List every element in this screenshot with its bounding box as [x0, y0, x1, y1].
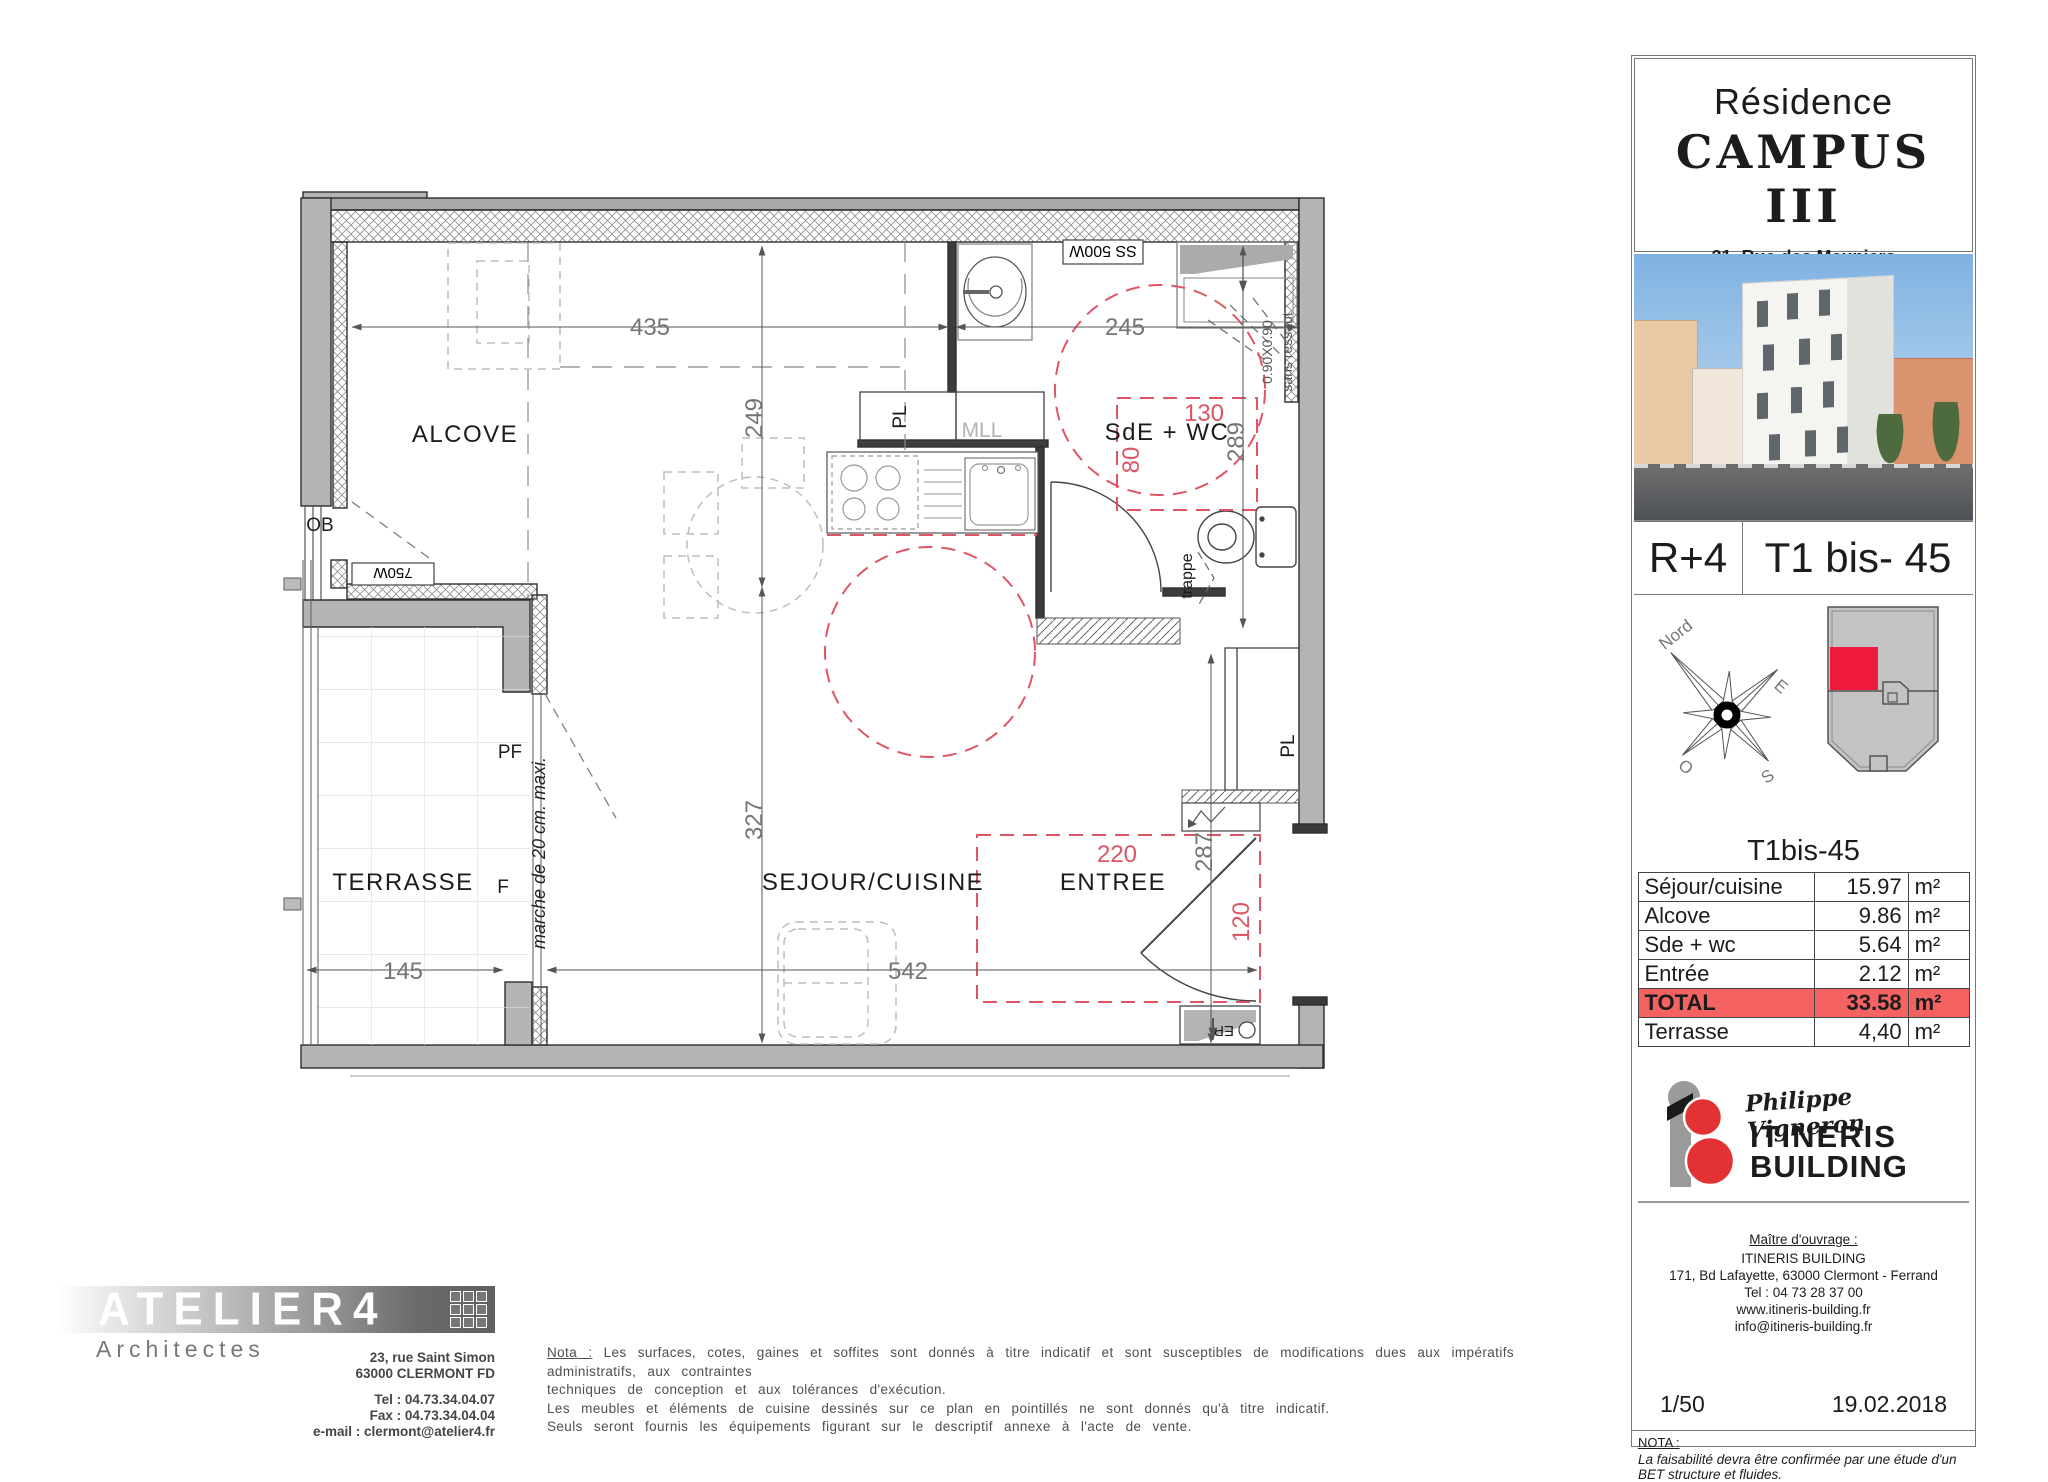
architect-address1: 23, rue Saint Simon	[240, 1350, 495, 1366]
closet-hatch	[1182, 790, 1299, 803]
dim-145: 145	[383, 958, 423, 985]
dim-287: 287	[1191, 832, 1218, 872]
table-row: Alcove 9.86 m²	[1638, 902, 1969, 931]
vent-box	[1182, 803, 1260, 831]
builder-name-line2: BUILDING	[1750, 1149, 1908, 1185]
label-pf: PF	[498, 742, 522, 763]
label-step-note: marche de 20 cm. maxi.	[529, 757, 549, 949]
owner-website: www.itineris-building.fr	[1632, 1301, 1975, 1318]
footnote-label: Nota :	[547, 1345, 592, 1360]
table-row: Sde + wc 5.64 m²	[1638, 931, 1969, 960]
room-label-sejour: SEJOUR/CUISINE	[762, 869, 984, 896]
site-plan	[1820, 601, 1960, 801]
drawing-date: 19.02.2018	[1832, 1391, 1947, 1418]
label-750w: 750W	[373, 564, 413, 581]
footnote-line4: Seuls seront fournis les équipements fig…	[547, 1418, 1567, 1437]
label-trappe: trappe	[1179, 553, 1196, 598]
dim-245: 245	[1105, 314, 1145, 341]
dim-120: 120	[1228, 902, 1255, 942]
projection-lines	[528, 242, 905, 598]
architect-logo-grid	[450, 1291, 487, 1328]
architect-fax: Fax : 04.73.34.04.04	[240, 1408, 495, 1424]
bath-sink	[958, 244, 1032, 340]
label-pl-entree: PL	[1278, 734, 1299, 757]
toilet	[1198, 507, 1296, 567]
dim-249: 249	[741, 398, 768, 438]
architect-email: e-mail : clermont@atelier4.fr	[240, 1424, 495, 1440]
compass-o: O	[1675, 756, 1697, 779]
dim-542: 542	[888, 958, 928, 985]
unit-location-marker	[1830, 647, 1878, 690]
drawing-scale: 1/50	[1660, 1391, 1705, 1418]
architect-contact: 23, rue Saint Simon 63000 CLERMONT FD Te…	[240, 1350, 495, 1440]
unit-number: T1 bis- 45	[1743, 522, 1973, 594]
dim-289: 289	[1223, 422, 1250, 462]
dim-130: 130	[1184, 400, 1224, 427]
label-f: F	[497, 877, 509, 898]
project-header: Résidence CAMPUS III 31, Rue des Meunier…	[1634, 58, 1973, 252]
label-mll: MLL	[962, 419, 1003, 442]
photo-building-left	[1634, 320, 1698, 472]
label-shower-note: sans ressaut	[1279, 312, 1295, 391]
compass-nord: Nord	[1655, 616, 1696, 654]
area-table-title: T1bis-45	[1632, 835, 1975, 868]
table-row: Entrée 2.12 m²	[1638, 960, 1969, 989]
compass-e: E	[1771, 676, 1792, 698]
architect-tel: Tel : 04.73.34.04.07	[240, 1392, 495, 1408]
project-name: CAMPUS III	[1635, 125, 1972, 233]
owner-block: Maître d'ouvrage : ITINERIS BUILDING 171…	[1632, 1231, 1975, 1335]
plan-footnote: Nota : Les surfaces, cotes, gaines et so…	[547, 1344, 1567, 1437]
footnote-line2: techniques de conception et aux toléranc…	[547, 1381, 1567, 1400]
dim-80: 80	[1118, 447, 1145, 474]
owner-name: ITINERIS BUILDING	[1632, 1250, 1975, 1267]
compass-rose: Nord E O S	[1642, 603, 1812, 813]
label-ep: EP	[1214, 1022, 1234, 1039]
owner-email: info@itineris-building.fr	[1632, 1318, 1975, 1335]
architect-logo: ATELIER4	[58, 1286, 495, 1333]
table-row: Terrasse 4,40 m²	[1638, 1018, 1969, 1047]
photo-road	[1634, 468, 1973, 520]
floor-unit-row: R+4 T1 bis- 45	[1634, 521, 1973, 595]
threshold-hatch	[1037, 618, 1180, 644]
table-row-total: TOTAL 33.58 m²	[1638, 989, 1969, 1018]
label-ss500w: SS 500W	[1068, 242, 1136, 259]
kitchen-counter	[827, 452, 1038, 533]
title-block-panel: Résidence CAMPUS III 31, Rue des Meunier…	[1631, 55, 1976, 1447]
scale-date-row: 1/50 19.02.2018	[1632, 1391, 1975, 1418]
room-label-entree: ENTREE	[1060, 869, 1166, 896]
table-row: Séjour/cuisine 15.97 m²	[1638, 873, 1969, 902]
floor-level: R+4	[1634, 522, 1743, 594]
floorplan-sheet: { "plan": { "rooms": { "alcove": "ALCOVE…	[0, 0, 2048, 1447]
owner-address: 171, Bd Lafayette, 63000 Clermont - Ferr…	[1632, 1267, 1975, 1284]
owner-tel: Tel : 04 73 28 37 00	[1632, 1284, 1975, 1301]
room-label-alcove: ALCOVE	[412, 421, 518, 448]
architect-address2: 63000 CLERMONT FD	[240, 1366, 495, 1382]
panel-nota-text: La faisabilité devra être confirmée par …	[1638, 1452, 1969, 1482]
photo-tree2	[1929, 402, 1963, 472]
panel-nota: NOTA : La faisabilité devra être confirm…	[1632, 1430, 1975, 1482]
label-pl-bath: PL	[890, 405, 911, 428]
terrace-tiles	[317, 627, 530, 1045]
panel-nota-heading: NOTA :	[1638, 1435, 1969, 1450]
compass-s: S	[1758, 765, 1778, 787]
builder-logo: Philippe Vigneron ITINERIS BUILDING	[1638, 1061, 1969, 1203]
dim-220: 220	[1097, 841, 1137, 868]
orientation-section: Nord E O S	[1632, 595, 1975, 827]
architect-logo-text: ATELIER4	[58, 1283, 387, 1336]
area-table: Séjour/cuisine 15.97 m² Alcove 9.86 m² S…	[1638, 872, 1970, 1047]
footnote-line1: Nota : Les surfaces, cotes, gaines et so…	[547, 1344, 1567, 1381]
dim-435: 435	[630, 314, 670, 341]
label-ob: OB	[306, 515, 333, 536]
itineris-mark	[1662, 1077, 1746, 1193]
residence-label: Résidence	[1635, 81, 1972, 123]
label-shower-size: 0.90X0.90	[1259, 320, 1275, 384]
room-label-terrasse: TERRASSE	[332, 869, 473, 896]
dim-327: 327	[741, 800, 768, 840]
owner-heading: Maître d'ouvrage :	[1632, 1231, 1975, 1248]
photo-building-main	[1742, 275, 1894, 480]
footnote-line3: Les meubles et éléments de cuisine dessi…	[547, 1400, 1567, 1419]
building-photo	[1634, 254, 1973, 521]
